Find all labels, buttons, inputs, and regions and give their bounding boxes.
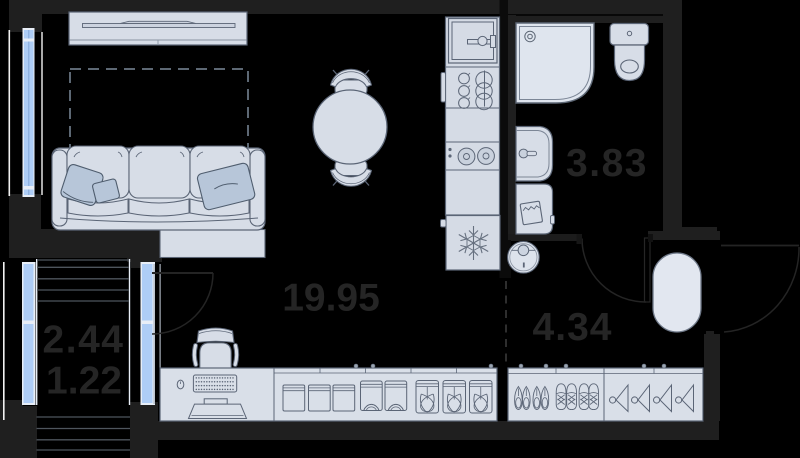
svg-text:19.95: 19.95 — [282, 277, 380, 320]
svg-text:2.44: 2.44 — [43, 319, 125, 362]
svg-text:1.22: 1.22 — [46, 360, 122, 403]
svg-text:4.34: 4.34 — [533, 306, 613, 349]
svg-text:3.83: 3.83 — [566, 142, 648, 185]
